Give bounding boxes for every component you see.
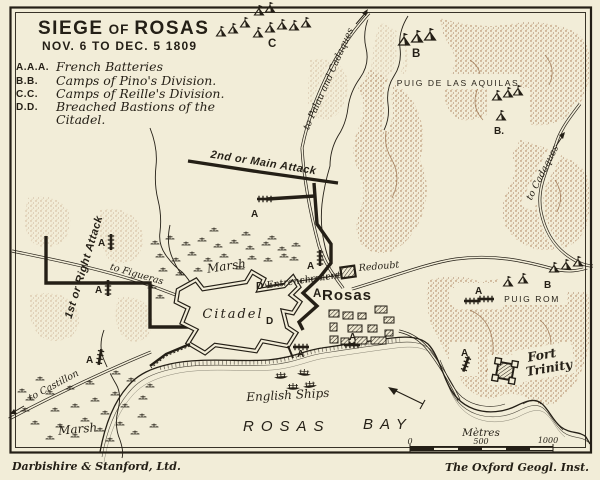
- battery-a-label: A: [461, 348, 468, 359]
- legend-key: C.C.: [16, 89, 38, 100]
- battery-a-label: A: [86, 355, 93, 366]
- town-block: [385, 330, 393, 336]
- scale-zero: 0: [407, 437, 412, 446]
- label-puig-de-las-aquilas: PUIG DE LAS AQUILAS: [397, 78, 520, 88]
- camp-b-label: B: [544, 280, 551, 291]
- siege-of-rosas-map-page: SIEGEOFROSAS NOV. 6 TO DEC. 5 1809 A.A.A…: [0, 0, 600, 480]
- battery-a-label: A: [98, 238, 105, 249]
- label-rosas-bay-2: BAY: [363, 416, 413, 433]
- battery-a-label: A: [349, 332, 356, 343]
- town-block: [330, 336, 338, 343]
- siege-of-rosas-map: SIEGEOFROSAS NOV. 6 TO DEC. 5 1809 A.A.A…: [0, 0, 600, 480]
- map-title: SIEGEOFROSAS: [38, 18, 209, 39]
- town-block: [355, 337, 367, 344]
- label-rosas-bay-1: ROSAS: [243, 418, 331, 435]
- town-block: [330, 323, 337, 331]
- label-rosas: Rosas: [322, 287, 372, 304]
- scale-mid: 500: [473, 437, 488, 446]
- legend-label: French Batteries: [55, 59, 163, 74]
- battery-a-label: A: [475, 286, 482, 297]
- town-block: [375, 306, 387, 313]
- town-block: [343, 312, 353, 319]
- credit-publisher: The Oxford Geogl. Inst.: [445, 461, 589, 474]
- redoubt-symbol: [340, 266, 355, 279]
- town-block: [371, 337, 386, 344]
- battery-a-label: A: [313, 288, 321, 300]
- breach-d-label: D: [256, 281, 263, 292]
- breach-d-label: D: [266, 316, 273, 327]
- town-block: [341, 338, 349, 344]
- legend-key: A.A.A.: [16, 62, 49, 73]
- battery-a-label: A: [297, 349, 304, 360]
- scale-end: 1000: [538, 436, 558, 445]
- legend-key: B.B.: [16, 76, 38, 87]
- town-block: [368, 325, 377, 332]
- battery-a-label: A: [307, 261, 314, 272]
- title-block: SIEGEOFROSAS NOV. 6 TO DEC. 5 1809: [38, 18, 209, 53]
- battery-a-label: A: [251, 209, 258, 220]
- town-block: [384, 317, 394, 323]
- label-puig-rom: PUIG ROM: [504, 294, 560, 304]
- map-dates: NOV. 6 TO DEC. 5 1809: [42, 39, 197, 53]
- town-block: [329, 310, 339, 317]
- label-citadel: Citadel: [202, 307, 263, 322]
- battery-a-label: A: [95, 285, 102, 296]
- legend-label-line2: Citadel.: [56, 112, 105, 127]
- legend-key: D.D.: [16, 102, 38, 113]
- camp-b-label: B: [412, 48, 420, 60]
- camp-c-label: C: [268, 38, 276, 50]
- credit-printer: Darbishire & Stanford, Ltd.: [11, 460, 181, 473]
- town-block: [358, 313, 366, 319]
- town-block: [348, 325, 362, 332]
- camp-b-label: B.: [494, 126, 504, 137]
